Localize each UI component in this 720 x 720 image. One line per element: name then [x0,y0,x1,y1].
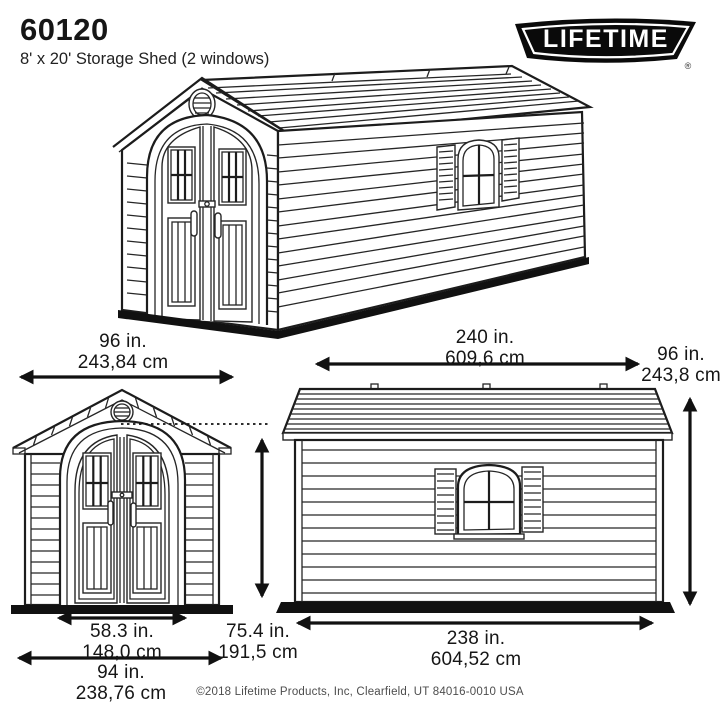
dim-side-length-in: 240 in. [405,327,565,348]
dim-door-height-in: 75.4 in. [178,621,338,642]
dim-height-in: 96 in. [621,344,720,365]
dim-label-front-width: 96 in. 243,84 cm [43,331,203,373]
dim-front-width-in: 96 in. [43,331,203,352]
dim-side-base-in: 238 in. [396,628,556,649]
dim-label-side-base-length: 238 in. 604,52 cm [396,628,556,670]
dim-door-height-cm: 191,5 cm [178,642,338,663]
dim-height-cm: 243,8 cm [621,365,720,386]
dim-label-height: 96 in. 243,8 cm [621,344,720,386]
dim-front-width-cm: 243,84 cm [43,352,203,373]
dim-label-side-length: 240 in. 609,6 cm [405,327,565,369]
spec-sheet: 60120 8' x 20' Storage Shed (2 windows) … [0,0,720,720]
dim-label-door-height: 75.4 in. 191,5 cm [178,621,338,663]
copyright-text: ©2018 Lifetime Products, Inc, Clearfield… [110,686,610,698]
dim-side-length-cm: 609,6 cm [405,348,565,369]
dim-side-base-cm: 604,52 cm [396,649,556,670]
dim-front-base-in: 94 in. [41,662,201,683]
